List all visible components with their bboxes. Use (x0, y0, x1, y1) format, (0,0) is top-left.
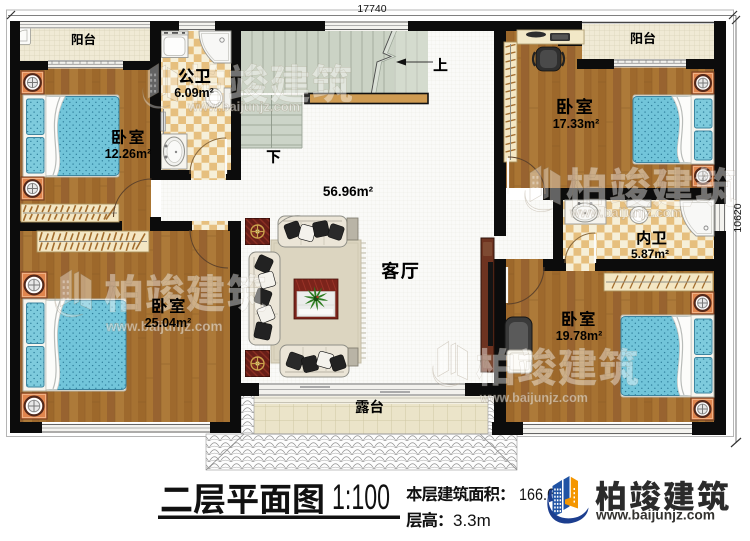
svg-text:12.26m²: 12.26m² (105, 147, 152, 161)
svg-text:5.87m²: 5.87m² (631, 247, 669, 261)
svg-text:www.baijunjz.com: www.baijunjz.com (595, 508, 715, 523)
svg-text:www.baijunjz.com: www.baijunjz.com (187, 99, 300, 114)
svg-text:www.baijunjz.com: www.baijunjz.com (569, 205, 682, 220)
svg-text:25.04m²: 25.04m² (145, 316, 192, 330)
svg-text:3.3m: 3.3m (453, 511, 491, 530)
svg-text:17740: 17740 (357, 3, 386, 15)
svg-text:1:100: 1:100 (332, 478, 390, 517)
svg-text:10620: 10620 (732, 203, 744, 232)
svg-text:19.78m²: 19.78m² (556, 329, 603, 343)
svg-text:17.33m²: 17.33m² (553, 117, 600, 131)
svg-text:6.09m²: 6.09m² (174, 86, 214, 100)
svg-text:www.baijunjz.com: www.baijunjz.com (479, 391, 588, 405)
svg-text:56.96m²: 56.96m² (323, 184, 374, 199)
